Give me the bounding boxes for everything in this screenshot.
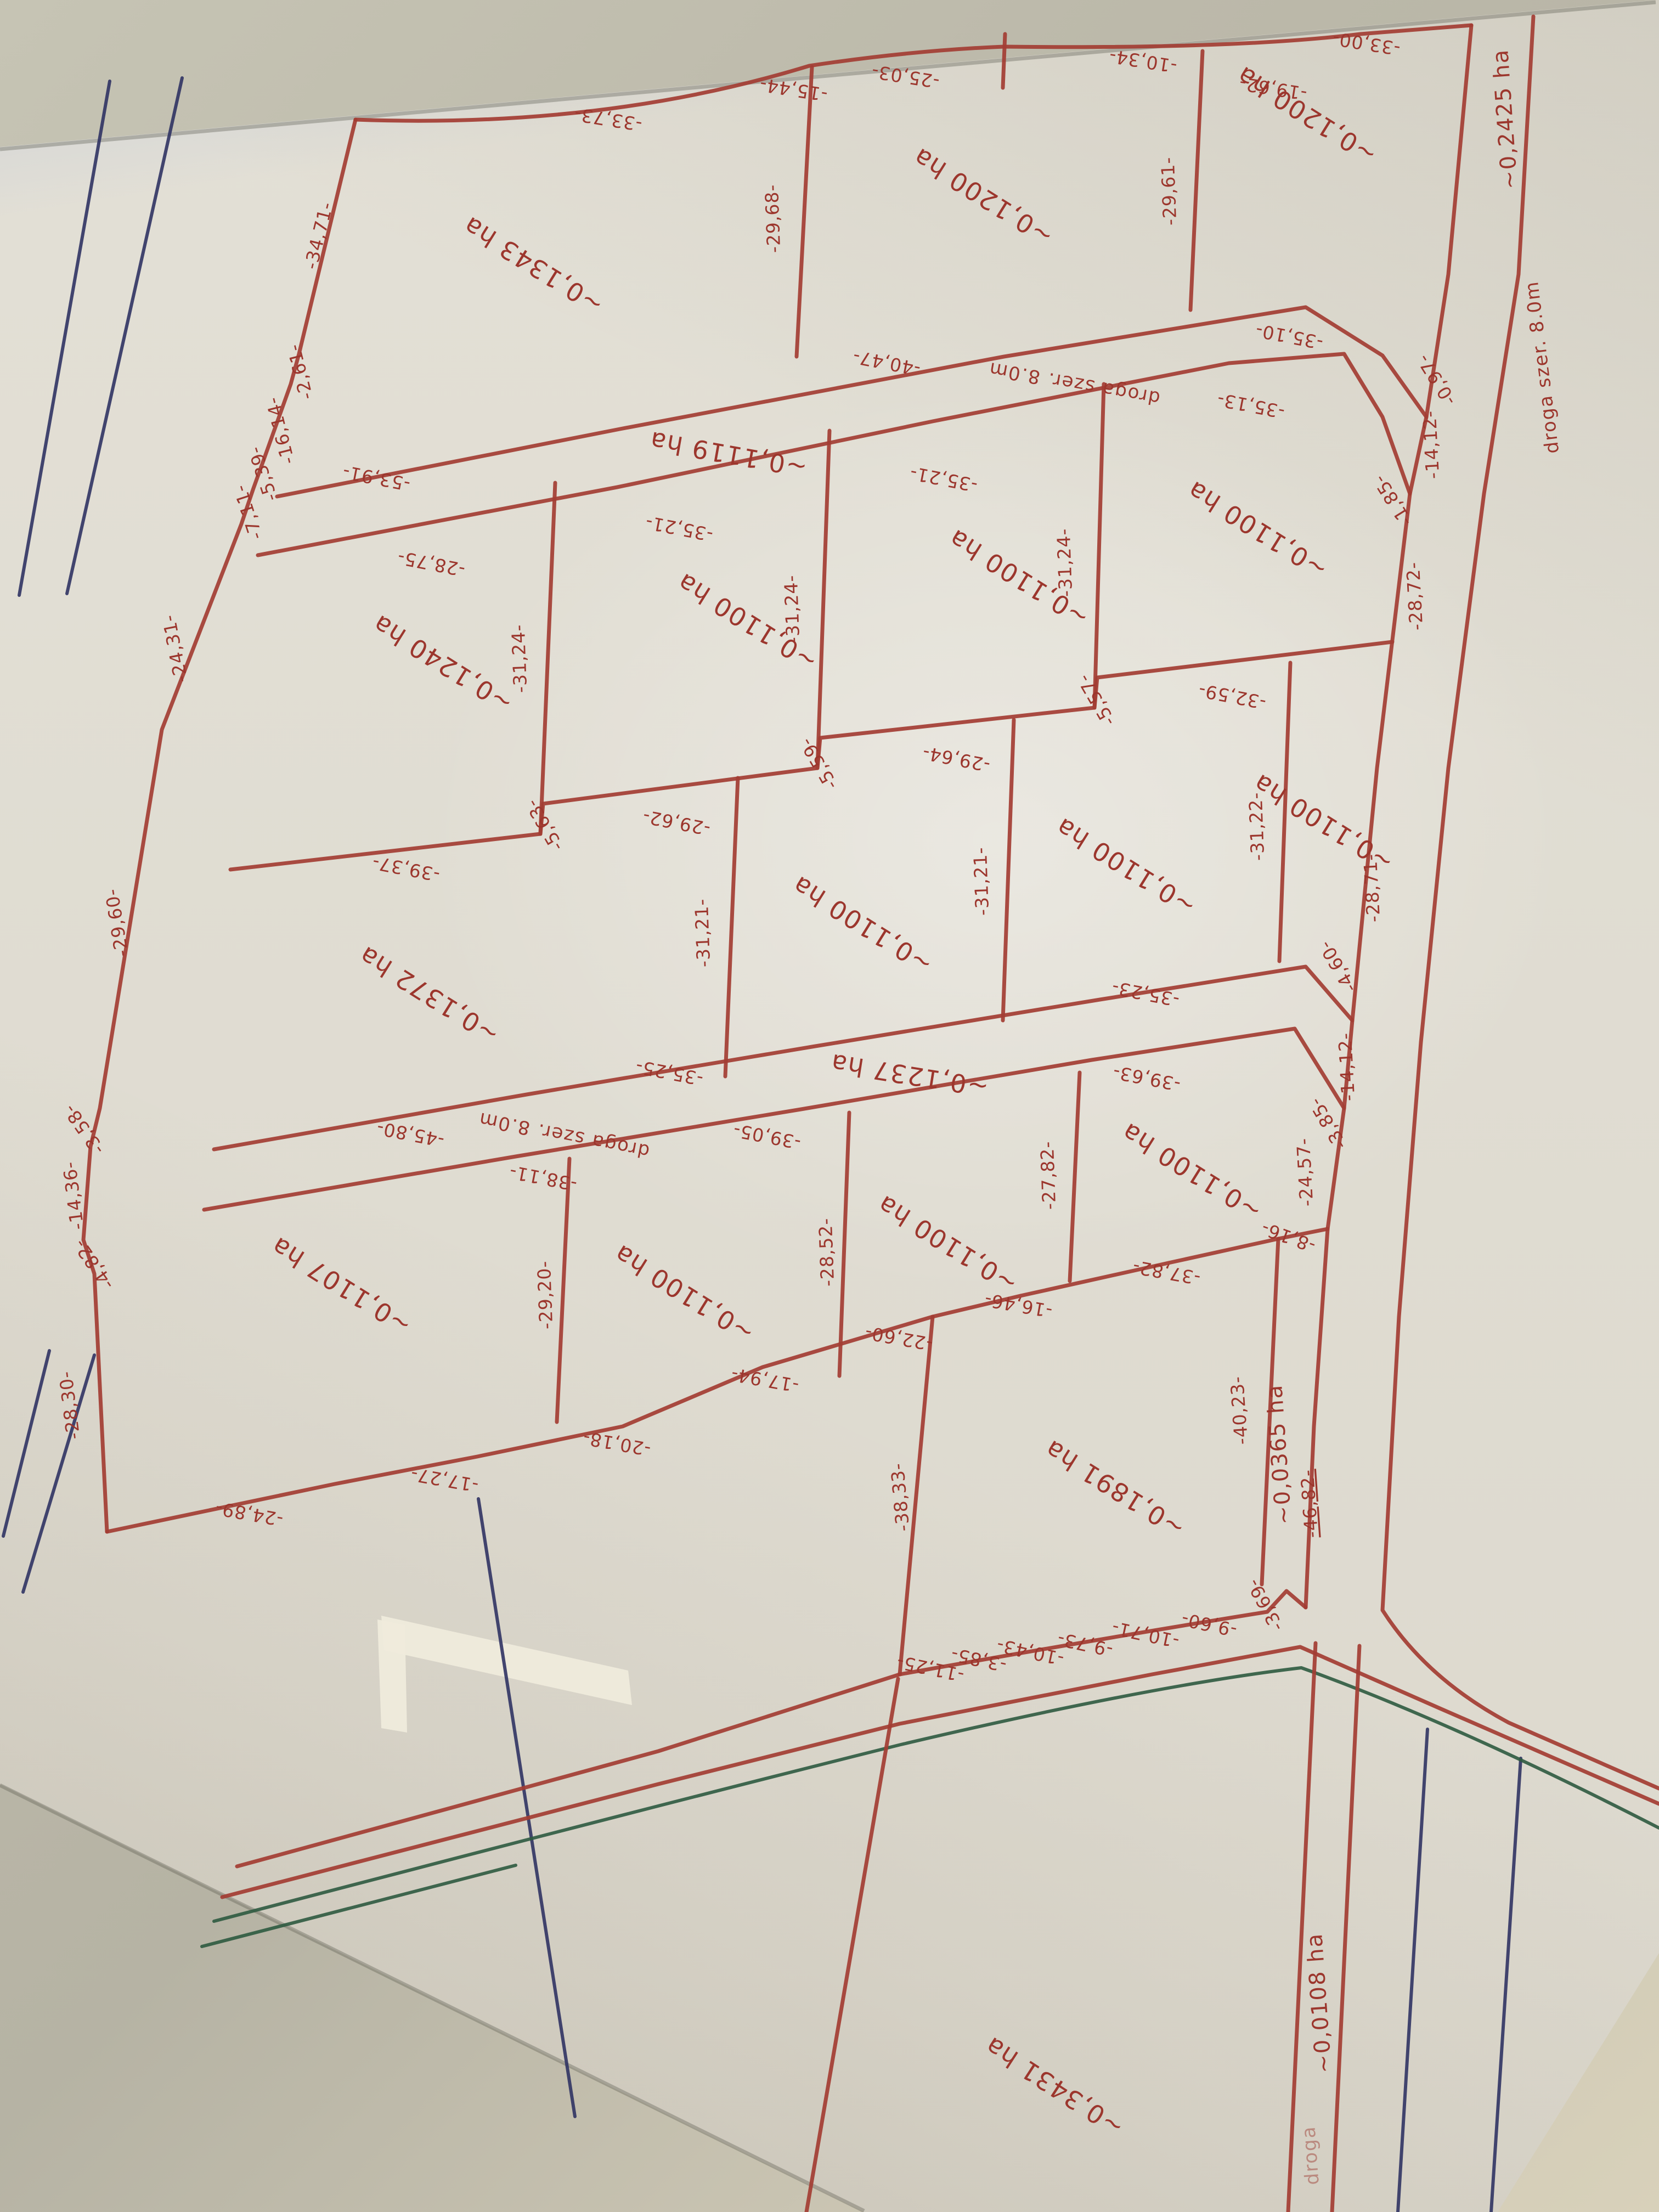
- dimension-label: -35,10-: [1254, 319, 1325, 353]
- divider-line: [1003, 720, 1014, 1020]
- dimension-label: -5,63-: [521, 795, 567, 855]
- dimension-label: -29,64-: [921, 742, 992, 776]
- dimension-label: -39,05-: [731, 1119, 803, 1153]
- dimension-label: -35,23-: [1110, 977, 1181, 1011]
- dimension-label: -31,21-: [969, 847, 993, 916]
- dimension-label: -14,12-: [1419, 410, 1444, 479]
- dimension-label: -31,24-: [1053, 528, 1076, 597]
- dimension-label: -39,63-: [1111, 1061, 1182, 1095]
- dimension-label: -29,62-: [641, 805, 712, 839]
- parcel-area-label: ~0,0108 ha: [1302, 1932, 1337, 2074]
- dimension-label: -29,20-: [533, 1260, 557, 1330]
- parcel-area-label: ~0,1372 ha: [353, 940, 505, 1049]
- parcel-area-label: ~0,1107 ha: [266, 1231, 417, 1340]
- divider-line: [817, 431, 830, 768]
- dimension-label: -28,52-: [815, 1217, 838, 1287]
- road-line: [222, 1647, 1659, 1897]
- dimension-label: -28,30-: [55, 1370, 84, 1441]
- boundary-tick: [1003, 34, 1005, 88]
- divider-line: [806, 1679, 898, 2212]
- parcel-area-label: ~0,1100 ha: [1182, 475, 1333, 584]
- utility-line-blue: [1398, 1729, 1427, 2212]
- parcel-area-label: ~0,1891 ha: [1039, 1434, 1190, 1543]
- dimension-label: -4,60-: [1314, 936, 1361, 996]
- dimension-label: -31,22-: [1245, 792, 1268, 861]
- dimension-label: -40,47-: [851, 346, 922, 380]
- dimension-label: -9,60-: [1179, 1608, 1239, 1641]
- dimension-label: -31,24-: [780, 574, 804, 644]
- dimension-label: -53,91-: [341, 461, 412, 495]
- parcel-area-label: ~0,1240 ha: [367, 608, 518, 718]
- dimension-label: -29,61-: [1157, 156, 1181, 226]
- dimension-label: -46,82-: [1296, 1469, 1323, 1539]
- parcel-area-label: ~0,1100 ha: [1116, 1116, 1267, 1226]
- dimension-label: -8,16-: [1258, 1217, 1318, 1257]
- parcel-area-label: ~0,1100 ha: [608, 1238, 760, 1348]
- utility-line-green: [214, 1668, 1659, 1921]
- road-label: droga szer. 8.0m: [1521, 280, 1564, 455]
- dimension-label: -29,68-: [761, 184, 785, 253]
- dimension-label: -16,46-: [983, 1289, 1054, 1322]
- dimension-label: -39,37-: [370, 851, 442, 885]
- dimension-label: -27,82-: [1036, 1141, 1060, 1210]
- dimension-label: -5,57-: [1073, 670, 1119, 730]
- road-label: droga: [1297, 2125, 1323, 2186]
- whiteout-mark: [377, 1620, 407, 1733]
- dimension-label: -31,21-: [691, 898, 714, 968]
- photo-of-survey-map: ~0,1343 ha ~0,1200 ha ~0,1200 ha ~0,2425…: [0, 0, 1659, 2212]
- dimension-label: -45,80-: [375, 1117, 446, 1151]
- dimension-label: -35,13-: [1215, 388, 1286, 422]
- divider-line: [540, 483, 555, 834]
- parcel-area-label: ~0,2425 ha: [1488, 48, 1523, 190]
- road-label: droga szer. 8.0m: [477, 1108, 652, 1163]
- dimension-label: -31,24-: [507, 624, 531, 693]
- dimension-label: -24,57-: [1293, 1137, 1318, 1207]
- dimension-label: -17,27-: [409, 1463, 480, 1496]
- dimension-label: -40,23-: [1226, 1375, 1252, 1446]
- paper-bottom-edge-shadow: [0, 1785, 864, 2211]
- road-label: droga szer. 8.0m: [987, 358, 1162, 409]
- dimension-label: -28,75-: [396, 546, 467, 580]
- divider-line: [557, 1159, 569, 1422]
- parcel-area-label: ~0,1343 ha: [458, 210, 609, 320]
- paper-top-edge-shadow: [0, 2, 1656, 149]
- parcel-area-label: ~0,1200 ha: [907, 142, 1059, 251]
- dimension-label: -5,59-: [795, 733, 842, 793]
- utility-line-blue: [67, 78, 182, 594]
- utility-line-blue: [19, 81, 110, 595]
- divider-line: [839, 1113, 849, 1376]
- dimension-label: -35,25-: [634, 1056, 705, 1090]
- dimension-label: -37,82-: [1131, 1256, 1202, 1289]
- dimension-label: -35,21-: [908, 462, 979, 496]
- dimension-label: -10,71-: [1109, 1617, 1181, 1652]
- dimension-label: -20,18-: [581, 1427, 652, 1460]
- dimension-label: -10,34-: [1107, 45, 1178, 77]
- dimension-label: -28,72-: [1402, 561, 1427, 631]
- dimension-label: -14,36-: [59, 1160, 88, 1231]
- parcel-area-label: ~0,1237 ha: [828, 1048, 990, 1102]
- dimension-label: -29,60-: [101, 887, 133, 958]
- dimension-label: -32,59-: [1197, 679, 1268, 713]
- divider-line: [1094, 384, 1104, 708]
- whiteout-mark: [381, 1616, 632, 1705]
- divider-line: [1190, 51, 1203, 310]
- divider-line: [725, 778, 738, 1076]
- utility-line-blue: [3, 1351, 49, 1536]
- parcel-area-label: ~0,1100 ha: [787, 870, 938, 979]
- dimension-label: -24,31-: [158, 613, 192, 684]
- dimension-label: -34,71-: [300, 200, 337, 272]
- parcel-area-label: ~0,3431 ha: [979, 2030, 1129, 2142]
- road-line: [1332, 1646, 1359, 2212]
- parcel-area-label: ~0,1100 ha: [872, 1189, 1023, 1299]
- survey-map-drawing: ~0,1343 ha ~0,1200 ha ~0,1200 ha ~0,2425…: [0, 0, 1659, 2212]
- dimension-label: -38,33-: [887, 1462, 914, 1532]
- divider-line: [797, 67, 812, 357]
- parcel-area-label: ~0,1100 ha: [1050, 811, 1201, 921]
- dimension-label: -35,21-: [644, 511, 715, 545]
- dimension-label: -3,69-: [1242, 1575, 1288, 1635]
- dimension-label: -28,71-: [1359, 853, 1385, 923]
- dimension-label: -14,12-: [1334, 1032, 1359, 1102]
- divider-line: [1070, 1073, 1080, 1281]
- utility-line-blue: [1491, 1758, 1521, 2212]
